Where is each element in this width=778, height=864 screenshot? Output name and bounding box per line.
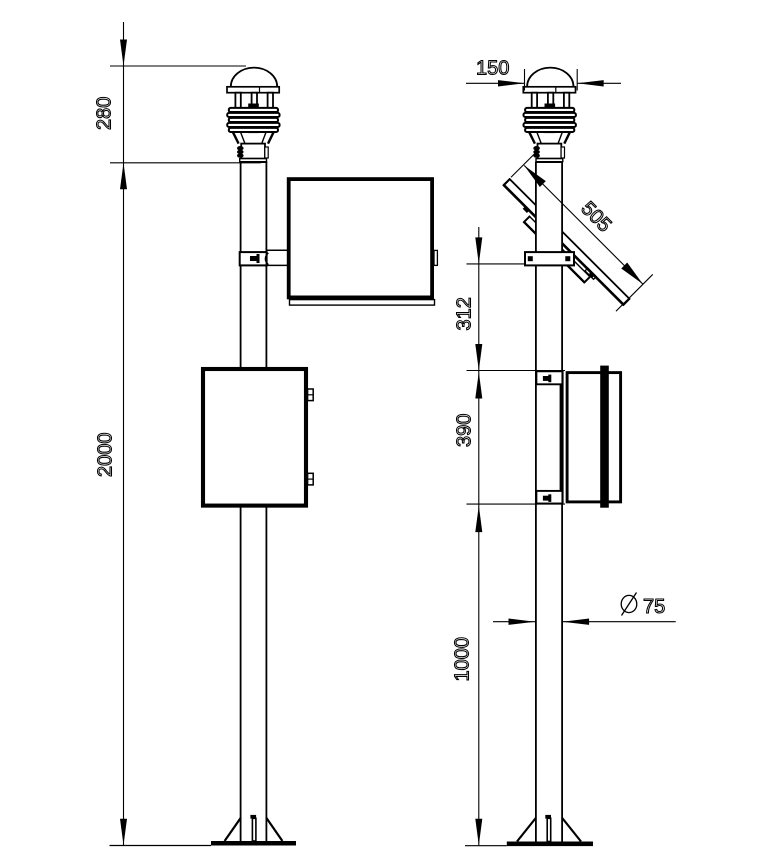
svg-text:150: 150: [476, 58, 509, 80]
svg-text:390: 390: [454, 414, 476, 447]
svg-text:2000: 2000: [95, 433, 117, 478]
svg-text:280: 280: [94, 97, 116, 130]
svg-text:312: 312: [454, 297, 476, 330]
svg-text:75: 75: [643, 596, 665, 618]
svg-text:1000: 1000: [452, 637, 474, 682]
